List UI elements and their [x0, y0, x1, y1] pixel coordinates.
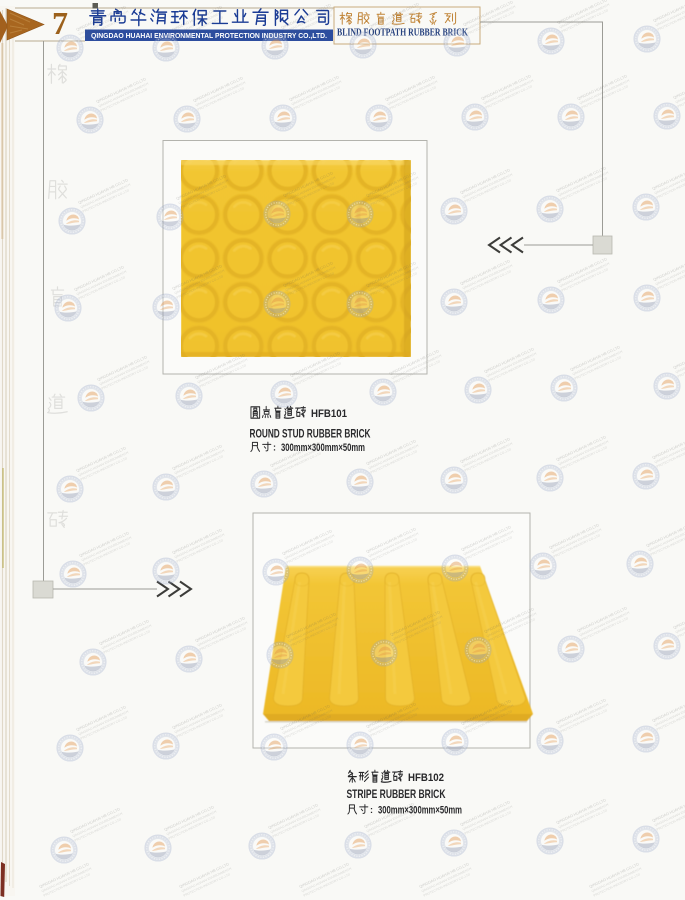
svg-text::: :: [370, 805, 373, 815]
svg-text::: :: [273, 443, 276, 453]
svg-text:HFB101: HFB101: [311, 408, 347, 420]
svg-text:ROUND STUD RUBBER BRICK: ROUND STUD RUBBER BRICK: [250, 428, 371, 441]
svg-text:HFB102: HFB102: [408, 772, 444, 784]
svg-text:STRIPE RUBBER BRICK: STRIPE RUBBER BRICK: [347, 788, 446, 801]
